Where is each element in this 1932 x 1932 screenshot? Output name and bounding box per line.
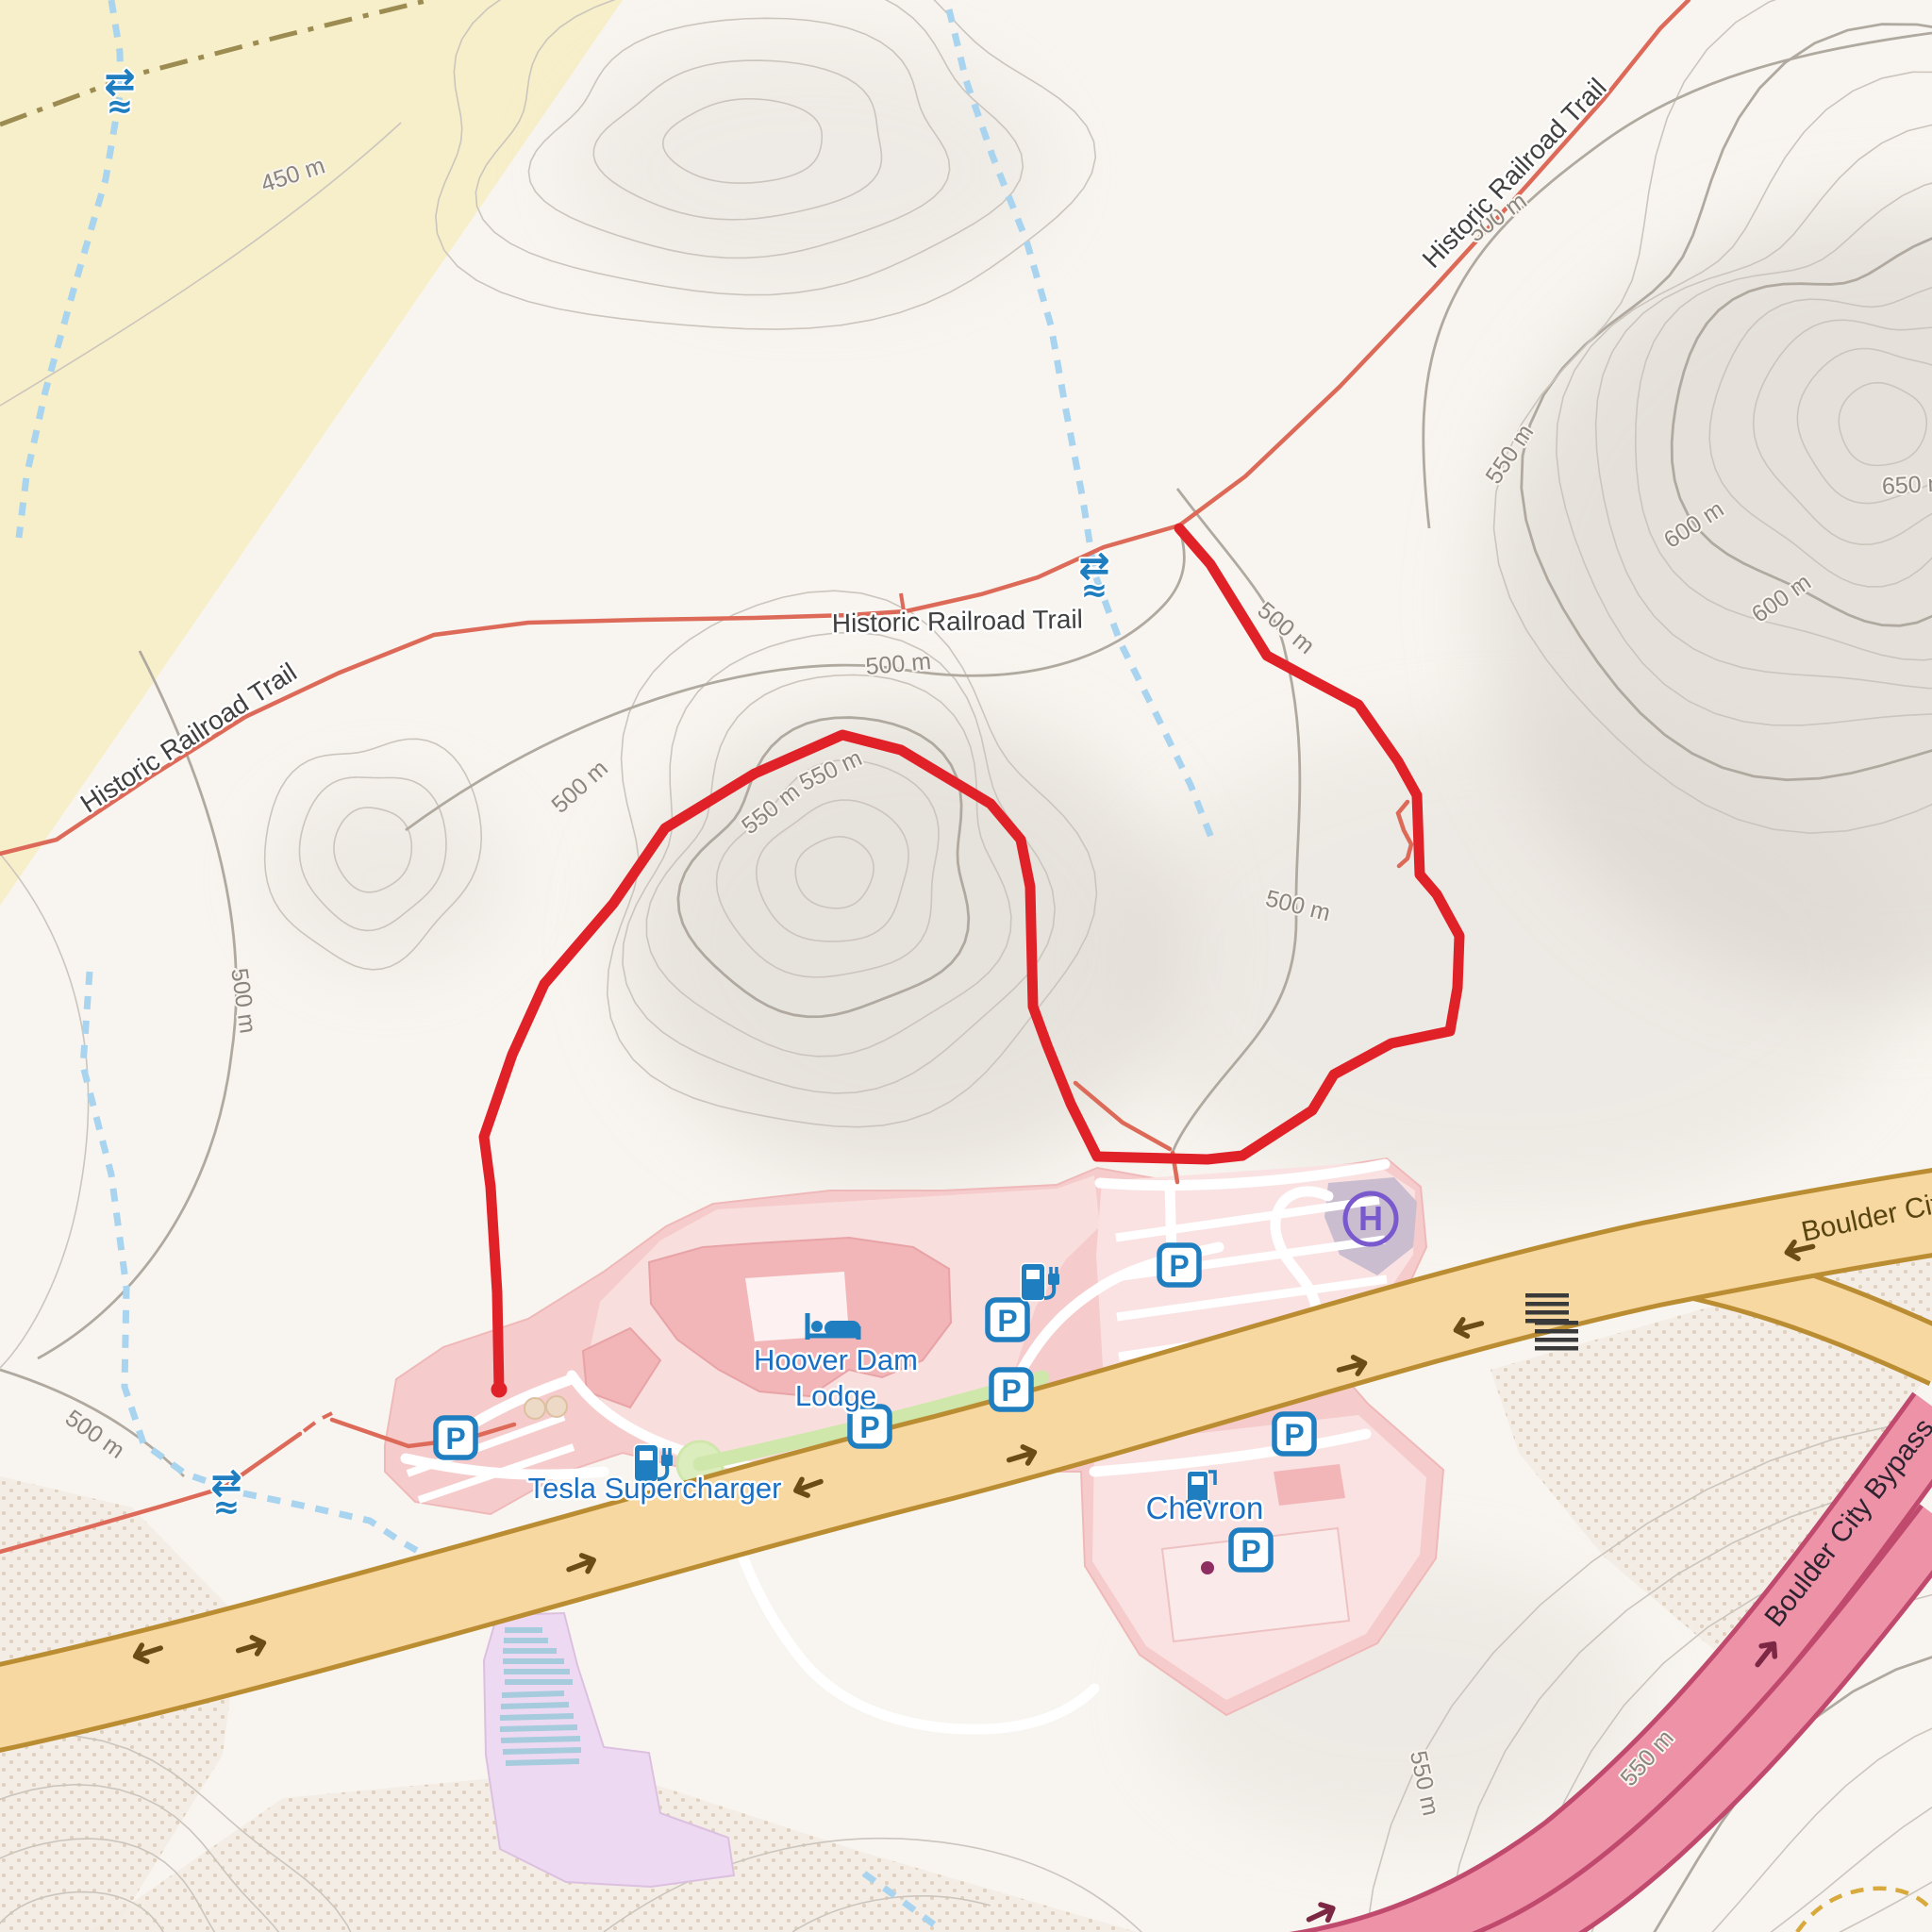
svg-text:P: P: [1169, 1249, 1189, 1283]
parking-icon[interactable]: P: [991, 1370, 1031, 1409]
poi-dot[interactable]: [1201, 1561, 1214, 1574]
ford-icon[interactable]: ⇄≈: [104, 60, 136, 125]
svg-text:≈: ≈: [1081, 572, 1108, 609]
svg-text:P: P: [859, 1410, 879, 1444]
ford-icon[interactable]: ⇄≈: [1078, 544, 1110, 609]
svg-text:≈: ≈: [107, 88, 134, 125]
parking-icon[interactable]: P: [850, 1407, 890, 1446]
svg-text:P: P: [1241, 1534, 1260, 1568]
map-canvas[interactable]: ⇄≈⇄≈⇄≈PPPPPPPH450 m500 m500 m550 m550 m5…: [0, 0, 1932, 1932]
svg-text:P: P: [445, 1422, 465, 1456]
parking-icon[interactable]: P: [988, 1300, 1027, 1340]
svg-text:P: P: [1001, 1374, 1021, 1407]
map-viewport[interactable]: ⇄≈⇄≈⇄≈PPPPPPPH450 m500 m500 m550 m550 m5…: [0, 0, 1932, 1932]
tesla-supercharger-label: Tesla Supercharger: [528, 1472, 782, 1505]
svg-text:H: H: [1358, 1199, 1383, 1238]
lodge-label: Lodge: [795, 1379, 876, 1412]
chevron-label: Chevron: [1146, 1491, 1264, 1525]
route-endpoint: [491, 1382, 508, 1398]
contour-label: 650 m: [1881, 470, 1932, 500]
svg-text:P: P: [1284, 1418, 1304, 1452]
parking-icon[interactable]: P: [1274, 1414, 1314, 1454]
parking-icon[interactable]: P: [436, 1418, 475, 1457]
parking-icon[interactable]: P: [1231, 1530, 1271, 1570]
trail-name-label: Historic Railroad Trail: [832, 605, 1084, 639]
lodge-label: Hoover Dam: [754, 1343, 918, 1376]
svg-text:≈: ≈: [213, 1489, 241, 1526]
parking-icon[interactable]: P: [1159, 1245, 1199, 1285]
ford-icon[interactable]: ⇄≈: [210, 1461, 242, 1526]
svg-text:P: P: [997, 1304, 1017, 1338]
